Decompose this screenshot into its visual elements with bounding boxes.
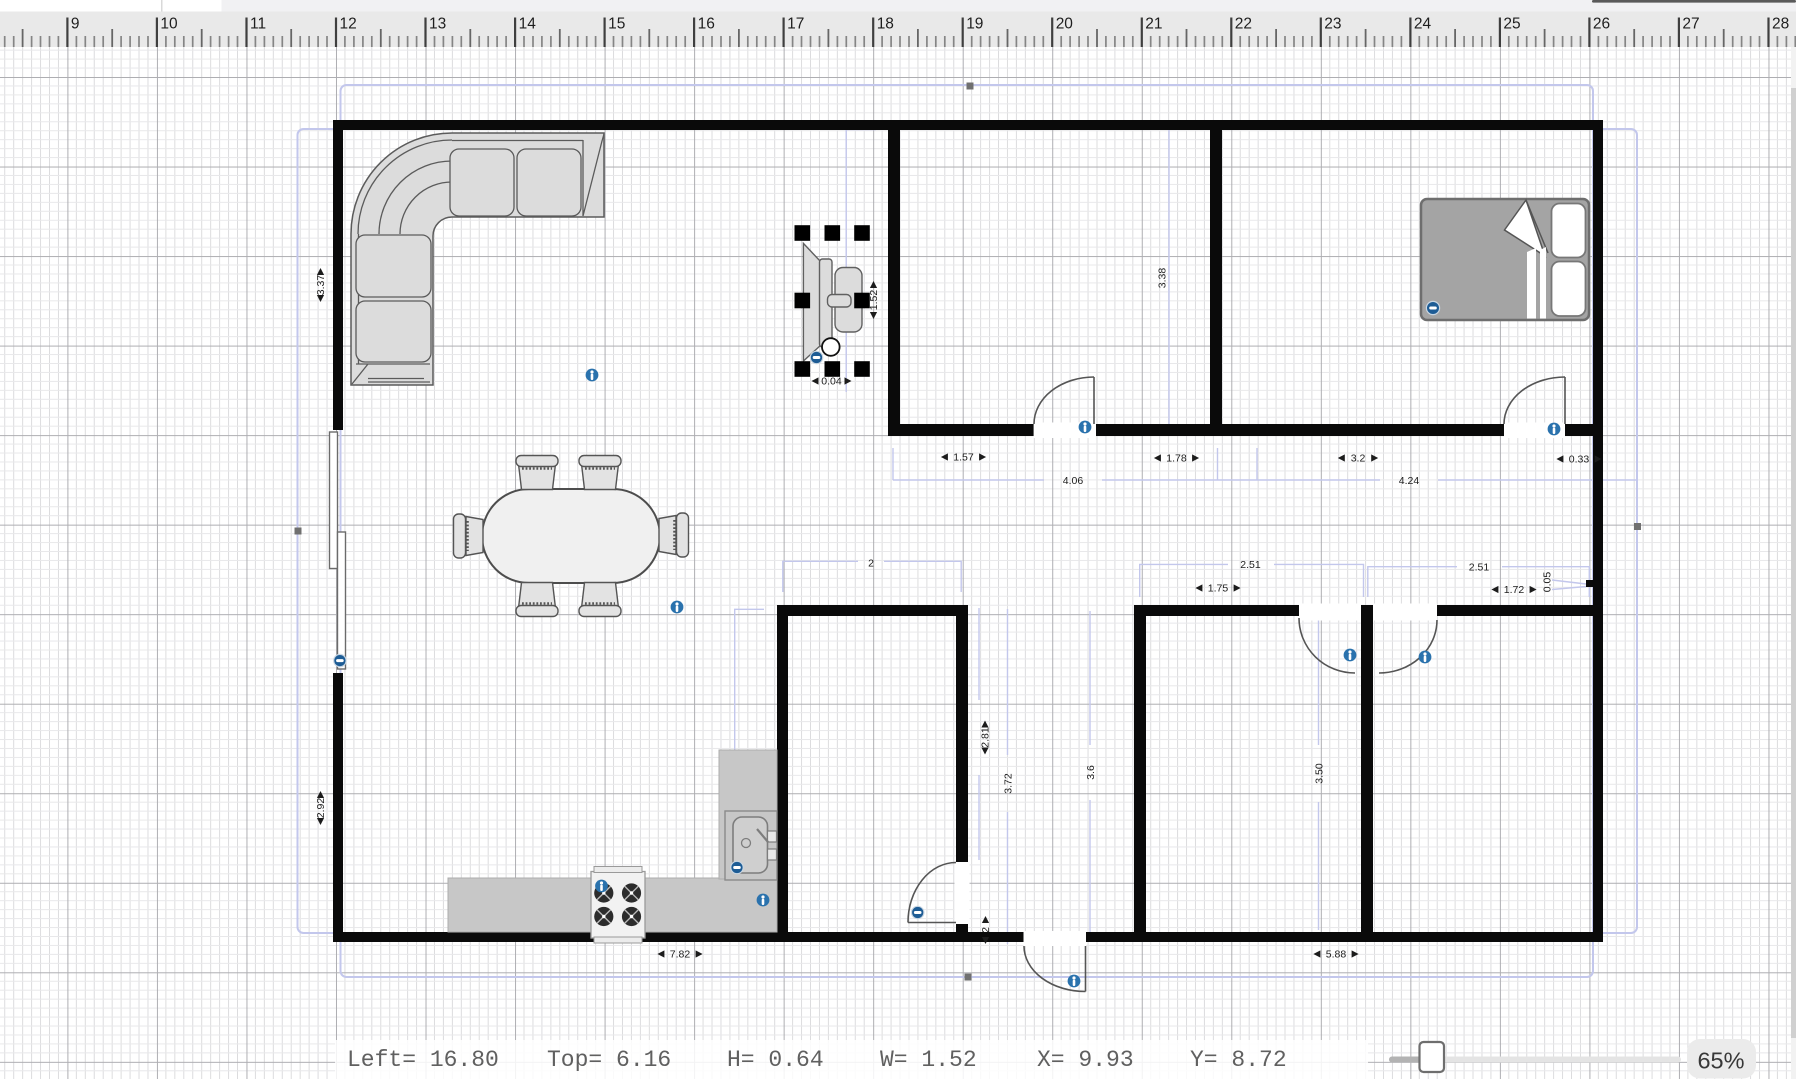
svg-text:18: 18 [877, 16, 894, 33]
svg-text:7.82: 7.82 [670, 949, 691, 961]
svg-text:2: 2 [980, 927, 992, 933]
svg-text:4.06: 4.06 [1063, 475, 1084, 487]
svg-text:1.78: 1.78 [1166, 453, 1187, 465]
svg-text:11: 11 [250, 16, 266, 33]
svg-text:27: 27 [1682, 16, 1699, 33]
svg-text:9: 9 [71, 16, 80, 33]
svg-text:22: 22 [1235, 16, 1252, 33]
svg-text:14: 14 [519, 16, 537, 33]
svg-text:26: 26 [1593, 16, 1610, 33]
svg-text:0.04: 0.04 [821, 376, 842, 388]
svg-text:3.6: 3.6 [1085, 765, 1097, 780]
svg-text:21: 21 [1145, 16, 1162, 33]
svg-text:2.81: 2.81 [980, 727, 992, 748]
svg-text:23: 23 [1324, 16, 1341, 33]
svg-text:H= 0.64: H= 0.64 [727, 1047, 824, 1073]
svg-text:Y= 8.72: Y= 8.72 [1190, 1047, 1287, 1073]
svg-text:24: 24 [1414, 16, 1432, 33]
svg-text:16: 16 [698, 16, 715, 33]
svg-text:20: 20 [1056, 16, 1074, 33]
svg-text:2.51: 2.51 [1469, 562, 1490, 574]
svg-text:3.72: 3.72 [1003, 773, 1015, 794]
svg-text:28: 28 [1772, 16, 1789, 33]
svg-text:Top= 6.16: Top= 6.16 [547, 1047, 671, 1073]
svg-text:X= 9.93: X= 9.93 [1037, 1047, 1134, 1073]
svg-text:19: 19 [966, 16, 983, 33]
svg-text:10: 10 [160, 16, 178, 33]
svg-text:1.75: 1.75 [1208, 583, 1229, 595]
svg-text:Left= 16.80: Left= 16.80 [347, 1047, 499, 1073]
svg-text:15: 15 [608, 16, 625, 33]
svg-text:3.2: 3.2 [1351, 453, 1366, 465]
svg-text:2.92: 2.92 [315, 798, 327, 819]
svg-text:1.57: 1.57 [953, 452, 974, 464]
svg-text:3.50: 3.50 [1314, 763, 1326, 784]
svg-text:65%: 65% [1697, 1048, 1744, 1074]
svg-text:2.51: 2.51 [1240, 559, 1261, 571]
svg-text:2: 2 [868, 558, 874, 570]
svg-text:17: 17 [787, 16, 804, 33]
svg-text:12: 12 [340, 16, 357, 33]
svg-text:0.33: 0.33 [1569, 454, 1590, 466]
svg-text:1.72: 1.72 [1504, 584, 1525, 596]
svg-text:3.37: 3.37 [315, 275, 327, 296]
svg-text:13: 13 [429, 16, 446, 33]
svg-text:5.88: 5.88 [1326, 949, 1347, 961]
svg-text:25: 25 [1503, 16, 1520, 33]
svg-text:3.38: 3.38 [1157, 268, 1169, 289]
svg-text:4.24: 4.24 [1399, 475, 1420, 487]
svg-text:1.52: 1.52 [868, 290, 880, 311]
svg-text:W= 1.52: W= 1.52 [880, 1047, 977, 1073]
svg-text:0.05: 0.05 [1542, 572, 1554, 593]
